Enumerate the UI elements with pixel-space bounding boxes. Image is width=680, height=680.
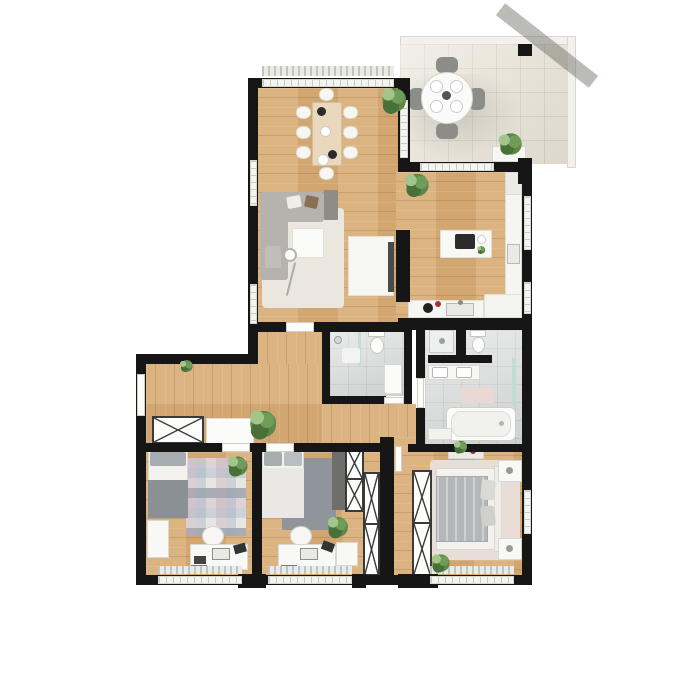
dining-plate-dark-1 [317,107,326,116]
window-kitchen-top [420,163,494,171]
kitchen-island-plate [477,235,486,244]
bed1-laptop [212,548,230,560]
bed1-desk-item-2 [194,556,206,564]
terrace-plate-3 [430,100,443,113]
window-bed1-bottom [158,576,242,584]
window-living-left-2 [250,284,257,324]
awning-dining [262,66,394,76]
sill-bed2 [268,566,352,574]
wall-hall-top [136,354,258,364]
dining-chair-right-1 [343,106,358,119]
bath2-toilet-bowl [472,337,485,353]
master-nightstand-lamp-2 [506,545,513,552]
master-wardrobe-panel-2 [414,522,430,574]
hallway-floor-upper [258,332,322,364]
living-sideboard [324,190,338,220]
bathtub-drain [499,421,504,426]
bath1-cabinet [384,364,402,394]
hallway-bench [206,418,254,444]
kitchen-red-item [435,301,441,307]
window-bed2-bottom [268,576,352,584]
wall-right-lower [522,330,532,585]
bath2-toilet-tank [470,330,486,337]
wall-tv [396,230,410,302]
corridor-wardrobe [363,472,380,576]
wall-bath1-left [322,330,330,404]
master-wardrobe [412,470,432,576]
master-nightstand-lamp-1 [506,467,513,474]
master-door [395,446,402,472]
window-living-left-1 [250,160,257,206]
bath2-basin-2 [456,367,472,378]
bed2-laptop [300,548,318,560]
bedroom1-door [222,443,250,452]
bed2-wardrobe [345,446,364,512]
corridor-wardrobe-panel-2 [365,523,378,574]
kitchen-faucet [458,300,463,305]
tv-screen [388,242,394,292]
bed1-pillow [150,452,186,466]
dining-chair-left-2 [296,126,311,139]
bath1-shower-head [334,336,342,344]
bedroom2-door [266,443,294,452]
dining-chair-right-2 [343,126,358,139]
master-wardrobe-panel-1 [414,472,430,522]
bed2-wardrobe-panel-1 [347,448,362,478]
hallway-wardrobe [152,416,204,444]
bed2-side-table [336,542,358,566]
pier-bottom-3 [352,574,366,588]
dining-plate-dark-2 [328,150,337,159]
bath2-mat [460,387,494,403]
sofa-pillow-1 [286,195,302,209]
entry-door [137,374,145,416]
wall-bath1-right [404,325,412,404]
kitchen-sink-right [507,244,520,264]
terrace-table-centerpiece [442,91,451,100]
hallway-wardrobe-panel-1 [154,418,202,442]
window-kitchen-right-2 [524,282,531,314]
bed2-wardrobe-panel-2 [347,478,362,510]
terrace-chair-top [436,57,458,73]
wall-living-bottom [258,322,408,332]
floor-plan [0,0,680,680]
bed2-duvet [262,468,304,518]
wall-bath2-inner-v [456,325,466,363]
dining-chair-left-1 [296,106,311,119]
dining-chair-bottom [319,167,334,180]
master-pillow-2 [480,505,496,526]
wall-master-top [408,444,532,452]
pier-bottom-1 [238,574,266,588]
wall-bedrooms-divider [252,443,262,585]
bath2-basin-1 [432,367,448,378]
living-door [286,322,314,332]
wall-bath2-left-lower [416,408,425,444]
wall-bedroom2-master [380,437,394,585]
sofa-ottoman [265,246,281,268]
window-kitchen-right-1 [524,196,531,250]
bed2-chair [290,526,312,546]
window-dining-top [262,79,394,87]
floor-lamp [283,248,297,262]
bath2-shower-glass [512,358,516,406]
window-master-bottom [430,576,514,584]
sill-bed1 [158,566,242,574]
terrace-plate-2 [450,80,463,93]
bath2-tray [428,428,452,440]
pillar-terrace-se [518,158,532,184]
bath2-shower-drain [439,338,445,344]
bed1-cabinet [147,520,169,558]
corridor-wardrobe-panel-1 [365,474,378,523]
terrace-plate-1 [430,80,443,93]
terrace-plate-4 [450,100,463,113]
window-master-right [524,490,531,534]
dining-bowl-2 [317,154,329,166]
bath1-toilet-bowl [370,337,384,354]
kitchen-cabinet-corner [484,294,522,318]
dining-chair-right-3 [343,146,358,159]
bath2-door [417,378,424,408]
terrace-chair-bottom [436,123,458,139]
wall-bath2-left-upper [416,330,425,378]
bath1-mat [342,348,360,363]
bath1-door [384,397,404,404]
bed2-pillow-2 [284,452,302,466]
bed1-blanket [148,480,188,518]
wall-bath1-bottom [322,396,386,404]
kitchen-cooktop [455,234,475,249]
master-pillow-1 [480,479,496,500]
bed2-cabinet [332,452,346,510]
pillar-terrace-ne [518,44,532,56]
dining-chair-left-3 [296,146,311,159]
sofa-pillow-2 [304,195,319,209]
bed1-chair [202,526,224,546]
bed2-pillow-1 [264,452,282,466]
dining-bowl-1 [320,126,331,137]
kitchen-kettle [423,303,433,313]
dining-chair-top [319,88,334,101]
